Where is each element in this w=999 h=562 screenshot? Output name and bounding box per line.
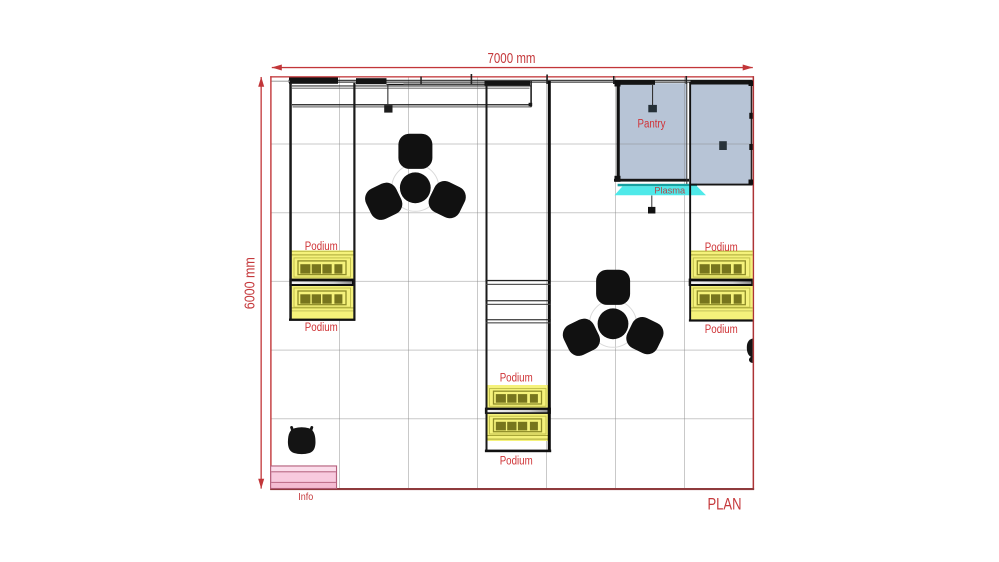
svg-text:Podium: Podium	[500, 455, 533, 467]
svg-text:Info: Info	[298, 492, 313, 503]
svg-text:Podium: Podium	[305, 322, 338, 334]
svg-text:Podium: Podium	[305, 241, 338, 253]
svg-text:PLAN: PLAN	[708, 495, 742, 514]
svg-text:Podium: Podium	[500, 372, 533, 384]
svg-text:Podium: Podium	[705, 324, 738, 336]
svg-text:Pantry: Pantry	[638, 118, 666, 130]
svg-text:7000 mm: 7000 mm	[488, 50, 536, 67]
svg-text:Plasma: Plasma	[654, 185, 686, 196]
svg-text:Podium: Podium	[705, 242, 738, 254]
svg-text:6000 mm: 6000 mm	[241, 257, 258, 309]
